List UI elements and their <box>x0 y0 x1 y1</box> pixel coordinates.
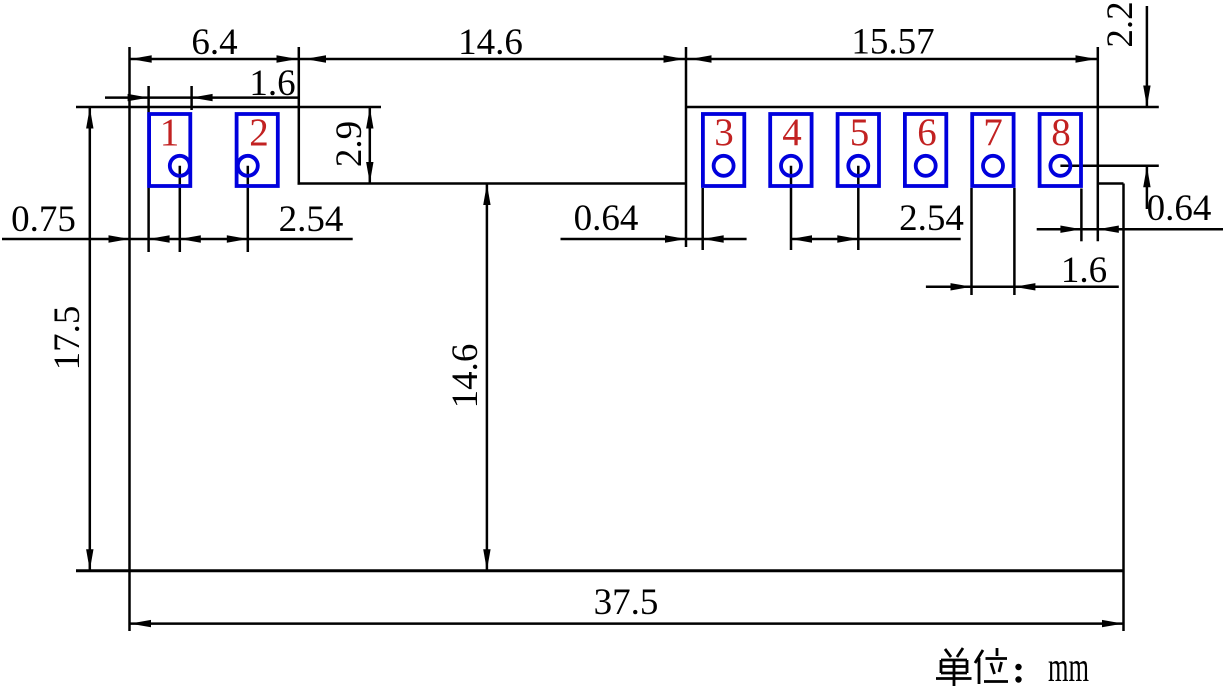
svg-text:0.64: 0.64 <box>574 198 639 239</box>
svg-text:1.6: 1.6 <box>249 63 295 104</box>
svg-text:2.54: 2.54 <box>899 198 964 239</box>
svg-text:3: 3 <box>714 111 734 154</box>
svg-text:4: 4 <box>782 111 802 154</box>
svg-text:5: 5 <box>850 111 870 154</box>
svg-text:7: 7 <box>983 111 1003 154</box>
svg-text:0.64: 0.64 <box>1147 188 1212 229</box>
svg-text:6.4: 6.4 <box>191 22 237 63</box>
svg-text:1.6: 1.6 <box>1061 250 1107 291</box>
svg-text:2.9: 2.9 <box>329 121 370 167</box>
svg-text:mm: mm <box>1048 645 1089 691</box>
svg-text:0.75: 0.75 <box>11 199 76 240</box>
svg-text:2: 2 <box>249 111 269 154</box>
svg-text:2.54: 2.54 <box>279 199 344 240</box>
svg-text:1: 1 <box>160 111 180 154</box>
svg-text:6: 6 <box>917 111 937 154</box>
svg-text:17.5: 17.5 <box>47 306 88 371</box>
svg-text:14.6: 14.6 <box>458 22 523 63</box>
svg-text:14.6: 14.6 <box>445 344 486 409</box>
svg-text:2.2: 2.2 <box>1100 1 1141 47</box>
svg-text:37.5: 37.5 <box>594 582 659 623</box>
svg-text:15.57: 15.57 <box>851 22 934 63</box>
svg-text:8: 8 <box>1051 111 1071 154</box>
